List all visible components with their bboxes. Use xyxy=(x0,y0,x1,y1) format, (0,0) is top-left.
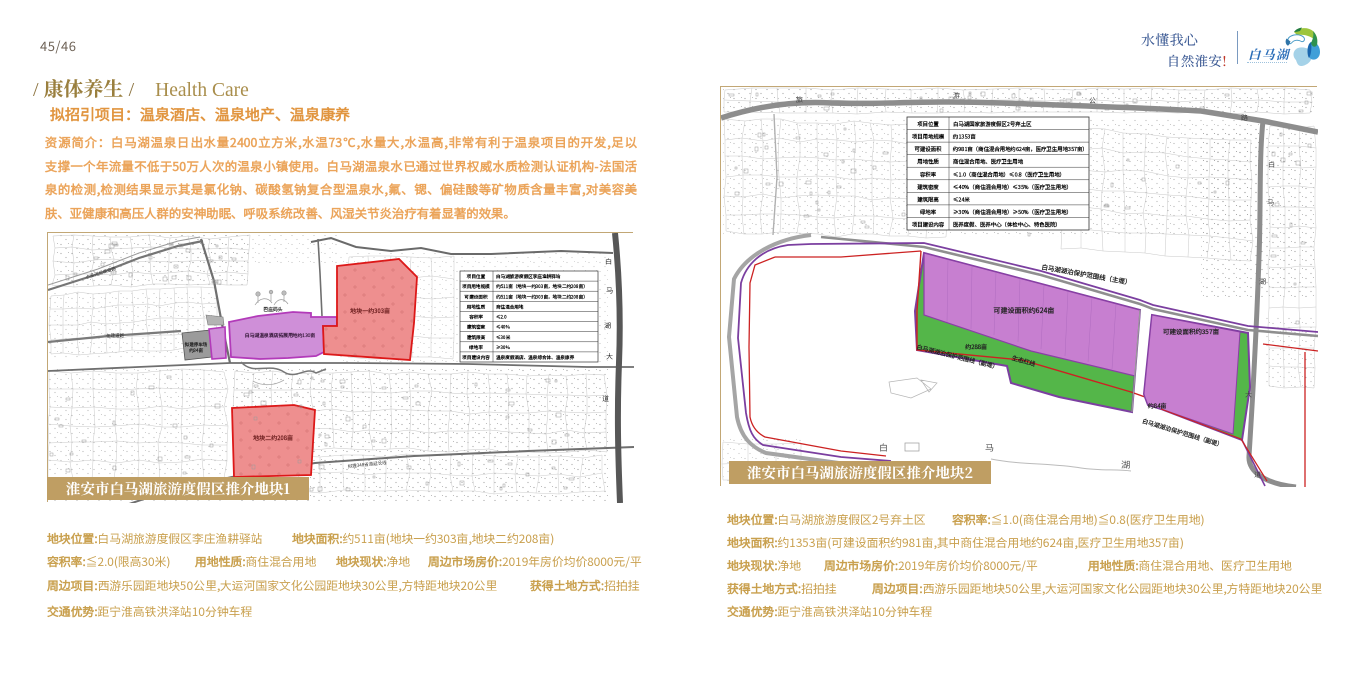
svg-text:≥30%: ≥30% xyxy=(496,344,511,351)
svg-text:项目建设内容: 项目建设内容 xyxy=(912,221,945,229)
svg-text:白马湖旅游度假区李庄渔耕驿站: 白马湖旅游度假区李庄渔耕驿站 xyxy=(496,273,561,280)
svg-text:白: 白 xyxy=(1268,160,1275,170)
svg-text:拟建停车场: 拟建停车场 xyxy=(184,341,208,348)
svg-text:大: 大 xyxy=(1245,390,1253,400)
svg-text:≤40%: ≤40% xyxy=(496,324,511,331)
svg-text:在建道路: 在建道路 xyxy=(105,332,124,339)
svg-text:容积率: 容积率 xyxy=(468,314,483,321)
svg-text:可建设面积约357亩: 可建设面积约357亩 xyxy=(1163,326,1220,336)
svg-text:约288亩: 约288亩 xyxy=(965,342,987,351)
svg-text:游: 游 xyxy=(953,91,960,101)
svg-text:≤1.0（商住混合用地）≤0.8（医疗卫生用地）: ≤1.0（商住混合用地）≤0.8（医疗卫生用地） xyxy=(953,170,1065,178)
svg-text:公: 公 xyxy=(1089,96,1096,106)
svg-text:建筑密度: 建筑密度 xyxy=(466,324,486,331)
svg-text:湖: 湖 xyxy=(1259,277,1266,287)
svg-text:建筑密度: 建筑密度 xyxy=(916,183,939,191)
svg-text:用地性质: 用地性质 xyxy=(916,158,939,166)
svg-text:白马湖温泉酒店拓展用地约130亩: 白马湖温泉酒店拓展用地约130亩 xyxy=(245,332,316,339)
svg-text:约84亩: 约84亩 xyxy=(1148,401,1167,410)
svg-text:约511亩（地块一约303亩，地块二约208亩）: 约511亩（地块一约303亩，地块二约208亩） xyxy=(495,293,588,300)
svg-text:马: 马 xyxy=(985,441,994,454)
svg-text:巴庄码头: 巴庄码头 xyxy=(263,306,282,313)
svg-text:容积率: 容积率 xyxy=(919,170,937,178)
svg-text:医养度假、医养中心（体检中心、特色医院）: 医养度假、医养中心（体检中心、特色医院） xyxy=(953,221,1061,229)
svg-text:商住混合用地、医疗卫生用地: 商住混合用地、医疗卫生用地 xyxy=(953,158,1024,166)
svg-text:建筑限高: 建筑限高 xyxy=(916,195,939,203)
svg-text:≥30%（商住混合用地）≥50%（医疗卫生用地）: ≥30%（商住混合用地）≥50%（医疗卫生用地） xyxy=(953,208,1072,216)
svg-text:可建设面积: 可建设面积 xyxy=(465,293,488,300)
svg-text:项目用地规模: 项目用地规模 xyxy=(461,283,490,290)
svg-text:白马湖国家旅游度假区2号弃土区: 白马湖国家旅游度假区2号弃土区 xyxy=(953,120,1032,128)
svg-text:白: 白 xyxy=(605,257,612,267)
svg-text:道: 道 xyxy=(602,394,609,404)
svg-text:项目建设内容: 项目建设内容 xyxy=(461,354,490,361)
svg-text:道: 道 xyxy=(1254,470,1261,480)
svg-text:绿地率: 绿地率 xyxy=(468,344,483,351)
svg-text:马: 马 xyxy=(1267,198,1274,208)
svg-text:项目位置: 项目位置 xyxy=(917,120,939,128)
svg-text:湖: 湖 xyxy=(604,321,611,331)
svg-text:可建设面积约624亩: 可建设面积约624亩 xyxy=(994,306,1055,316)
svg-text:约34亩: 约34亩 xyxy=(188,347,203,354)
svg-text:≤30米: ≤30米 xyxy=(496,334,511,341)
svg-text:大: 大 xyxy=(606,352,614,362)
svg-text:≤24米: ≤24米 xyxy=(953,195,970,203)
svg-text:路: 路 xyxy=(1241,113,1248,123)
svg-text:温泉度假酒店、温泉综合体、温泉康养: 温泉度假酒店、温泉综合体、温泉康养 xyxy=(495,354,575,361)
svg-text:地块一约303亩: 地块一约303亩 xyxy=(350,306,390,315)
svg-text:约981亩（商住混合用地约624亩，医疗卫生用地357亩）: 约981亩（商住混合用地约624亩，医疗卫生用地357亩） xyxy=(952,145,1088,153)
svg-text:商住混合用地: 商住混合用地 xyxy=(495,303,524,310)
svg-text:地块二约208亩: 地块二约208亩 xyxy=(253,433,293,442)
svg-text:可建设面积: 可建设面积 xyxy=(915,145,943,153)
svg-text:旅: 旅 xyxy=(796,95,803,105)
svg-text:约511亩（地块一约303亩，地块二约208亩）: 约511亩（地块一约303亩，地块二约208亩） xyxy=(495,283,588,290)
svg-text:≤40%（商住混合用地）≤35%（医疗卫生用地）: ≤40%（商住混合用地）≤35%（医疗卫生用地） xyxy=(953,183,1072,191)
svg-text:项目位置: 项目位置 xyxy=(466,273,486,280)
svg-text:建筑限高: 建筑限高 xyxy=(466,334,486,341)
svg-text:马: 马 xyxy=(606,286,613,296)
svg-text:约1353亩: 约1353亩 xyxy=(952,133,976,141)
svg-text:用地性质: 用地性质 xyxy=(466,303,486,310)
svg-text:绿地率: 绿地率 xyxy=(919,208,937,216)
svg-text:湖: 湖 xyxy=(1121,458,1130,471)
svg-text:项目用地规模: 项目用地规模 xyxy=(912,133,946,141)
svg-text:≤2.0: ≤2.0 xyxy=(496,314,507,321)
svg-text:白: 白 xyxy=(879,441,888,454)
